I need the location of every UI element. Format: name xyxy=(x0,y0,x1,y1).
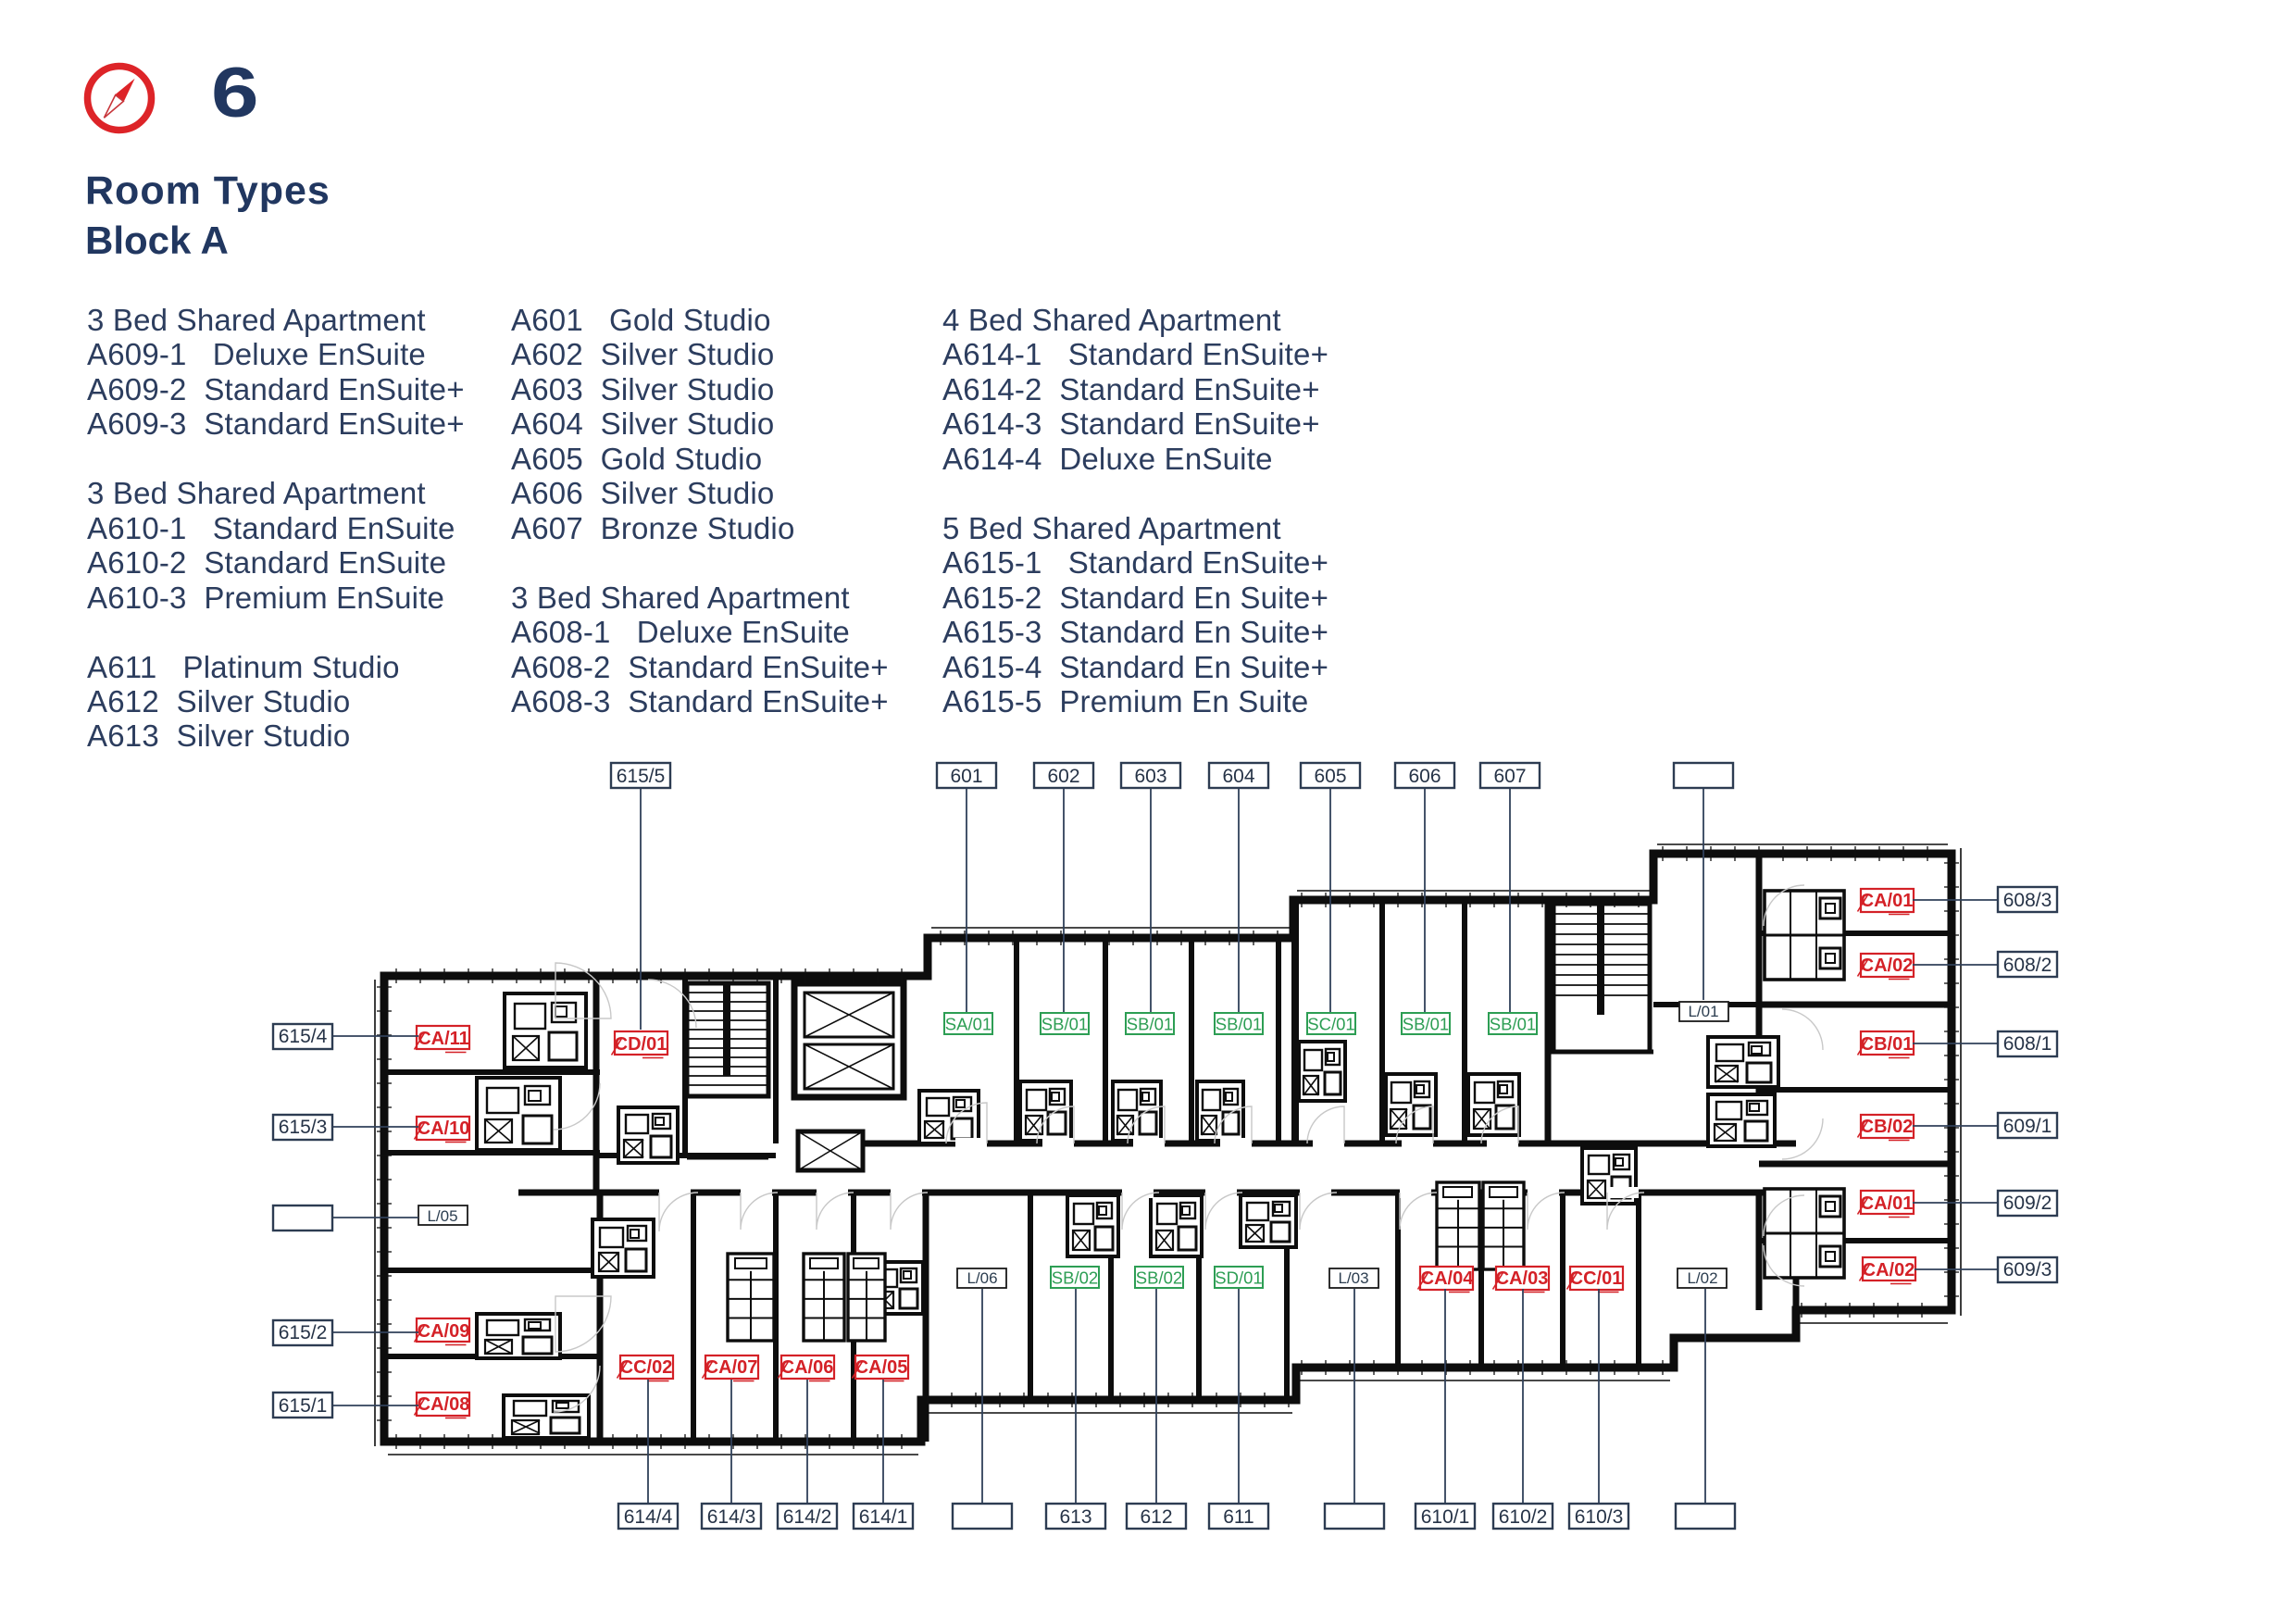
svg-text:615/4: 615/4 xyxy=(279,1026,328,1047)
svg-text:SB/02: SB/02 xyxy=(1136,1268,1182,1288)
svg-text:CA/11: CA/11 xyxy=(418,1029,469,1049)
svg-text:CA/05: CA/05 xyxy=(855,1357,908,1378)
svg-text:613: 613 xyxy=(1059,1506,1091,1528)
svg-text:614/1: 614/1 xyxy=(859,1506,908,1528)
svg-text:CB/01: CB/01 xyxy=(1861,1034,1914,1055)
svg-text:CA/02: CA/02 xyxy=(1863,1260,1915,1280)
svg-text:614/2: 614/2 xyxy=(783,1506,832,1528)
svg-text:609/3: 609/3 xyxy=(2003,1259,2052,1280)
svg-text:610/2: 610/2 xyxy=(1499,1506,1548,1528)
svg-text:SB/01: SB/01 xyxy=(1041,1015,1088,1034)
svg-text:CC/02: CC/02 xyxy=(620,1357,673,1378)
svg-text:CA/03: CA/03 xyxy=(1496,1268,1549,1289)
svg-text:SB/01: SB/01 xyxy=(1127,1015,1173,1034)
svg-text:CA/09: CA/09 xyxy=(418,1321,470,1342)
svg-text:CB/02: CB/02 xyxy=(1861,1117,1914,1137)
svg-text:615/3: 615/3 xyxy=(279,1117,328,1138)
svg-text:SB/01: SB/01 xyxy=(1403,1015,1449,1034)
svg-text:605: 605 xyxy=(1314,766,1346,787)
svg-text:610/1: 610/1 xyxy=(1421,1506,1470,1528)
svg-text:614/4: 614/4 xyxy=(624,1506,673,1528)
svg-text:CA/06: CA/06 xyxy=(781,1357,834,1378)
svg-text:610/3: 610/3 xyxy=(1575,1506,1624,1528)
svg-text:L/05: L/05 xyxy=(427,1207,457,1225)
svg-text:608/2: 608/2 xyxy=(2003,955,2052,976)
svg-text:L/06: L/06 xyxy=(967,1269,997,1287)
svg-text:612: 612 xyxy=(1140,1506,1172,1528)
svg-text:604: 604 xyxy=(1222,766,1254,787)
svg-text:615/2: 615/2 xyxy=(279,1322,328,1343)
svg-text:614/3: 614/3 xyxy=(707,1506,756,1528)
svg-text:615/1: 615/1 xyxy=(279,1395,328,1417)
svg-text:CA/07: CA/07 xyxy=(705,1357,758,1378)
svg-text:CD/01: CD/01 xyxy=(615,1034,667,1055)
svg-text:608/3: 608/3 xyxy=(2003,890,2052,911)
svg-text:603: 603 xyxy=(1134,766,1166,787)
svg-text:L/03: L/03 xyxy=(1338,1269,1368,1287)
svg-text:SA/01: SA/01 xyxy=(945,1015,992,1034)
svg-text:CA/04: CA/04 xyxy=(1421,1268,1475,1289)
svg-text:SB/02: SB/02 xyxy=(1052,1268,1098,1288)
svg-text:611: 611 xyxy=(1223,1506,1254,1528)
svg-text:CA/10: CA/10 xyxy=(418,1118,470,1139)
svg-text:606: 606 xyxy=(1408,766,1441,787)
svg-text:615/5: 615/5 xyxy=(617,766,666,787)
svg-text:SD/01: SD/01 xyxy=(1215,1268,1262,1288)
svg-text:601: 601 xyxy=(950,766,982,787)
svg-text:L/02: L/02 xyxy=(1687,1269,1717,1287)
svg-text:SC/01: SC/01 xyxy=(1307,1015,1354,1034)
svg-text:SB/01: SB/01 xyxy=(1490,1015,1536,1034)
svg-text:CA/01: CA/01 xyxy=(1861,1193,1914,1214)
svg-text:SB/01: SB/01 xyxy=(1216,1015,1262,1034)
svg-text:608/1: 608/1 xyxy=(2003,1033,2052,1055)
svg-text:CA/01: CA/01 xyxy=(1861,891,1914,911)
svg-text:CA/02: CA/02 xyxy=(1861,956,1914,976)
svg-text:609/2: 609/2 xyxy=(2003,1193,2052,1214)
svg-text:602: 602 xyxy=(1047,766,1079,787)
svg-text:609/1: 609/1 xyxy=(2003,1116,2052,1137)
svg-text:CA/08: CA/08 xyxy=(418,1394,470,1415)
svg-text:CC/01: CC/01 xyxy=(1570,1268,1623,1289)
svg-text:607: 607 xyxy=(1493,766,1526,787)
svg-text:L/01: L/01 xyxy=(1688,1003,1718,1020)
